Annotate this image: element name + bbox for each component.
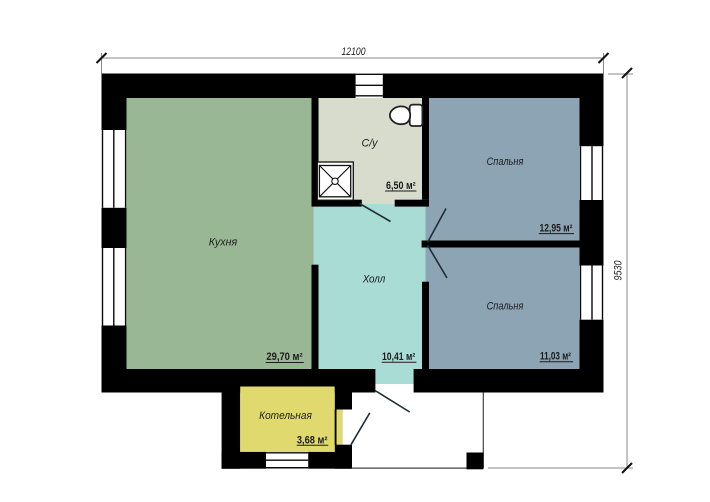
- svg-text:12100: 12100: [342, 46, 367, 58]
- svg-text:Котельная: Котельная: [259, 410, 312, 422]
- svg-text:Холл: Холл: [362, 273, 385, 285]
- svg-text:Спальня: Спальня: [487, 156, 524, 168]
- svg-text:3,68 м²: 3,68 м²: [297, 434, 328, 446]
- svg-text:9530: 9530: [613, 260, 625, 281]
- svg-text:Спальня: Спальня: [487, 301, 524, 313]
- svg-text:29,70 м²: 29,70 м²: [266, 351, 303, 363]
- svg-text:11,03 м²: 11,03 м²: [540, 351, 571, 363]
- svg-text:Кухня: Кухня: [209, 237, 238, 249]
- svg-text:12,95 м²: 12,95 м²: [540, 223, 573, 235]
- svg-text:6,50 м²: 6,50 м²: [386, 180, 416, 192]
- svg-text:С/у: С/у: [362, 138, 379, 150]
- svg-text:10,41 м²: 10,41 м²: [382, 351, 416, 363]
